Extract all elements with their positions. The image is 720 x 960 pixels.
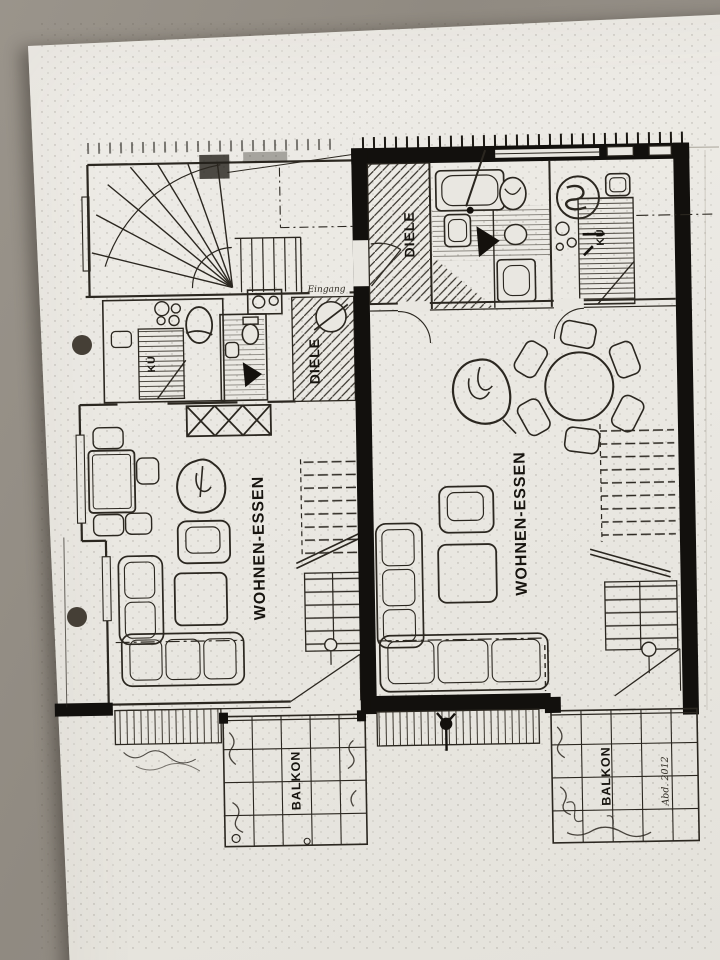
- left-hall-label: DIELE: [306, 338, 323, 385]
- photo-scene: KÜ Eingang: [0, 0, 720, 960]
- left-living-label: WOHNEN-ESSEN: [250, 476, 270, 621]
- right-balcony-label: BALKON: [599, 746, 614, 806]
- left-entry-note: Eingang: [306, 284, 345, 295]
- right-living-label: WOHNEN-ESSEN: [511, 451, 531, 596]
- right-hall-label: DIELE: [401, 211, 418, 258]
- bidet: [504, 224, 526, 244]
- left-balcony-label: BALKON: [289, 751, 304, 811]
- left-kitchen-label: KÜ: [145, 355, 158, 372]
- floorplan-drawing: KÜ Eingang: [0, 0, 720, 960]
- toilet: [500, 177, 527, 209]
- handwritten-note: Abd. 2012: [660, 756, 672, 806]
- right-kitchen-label: KÜ: [594, 228, 607, 245]
- right-hall: DIELE: [367, 163, 431, 304]
